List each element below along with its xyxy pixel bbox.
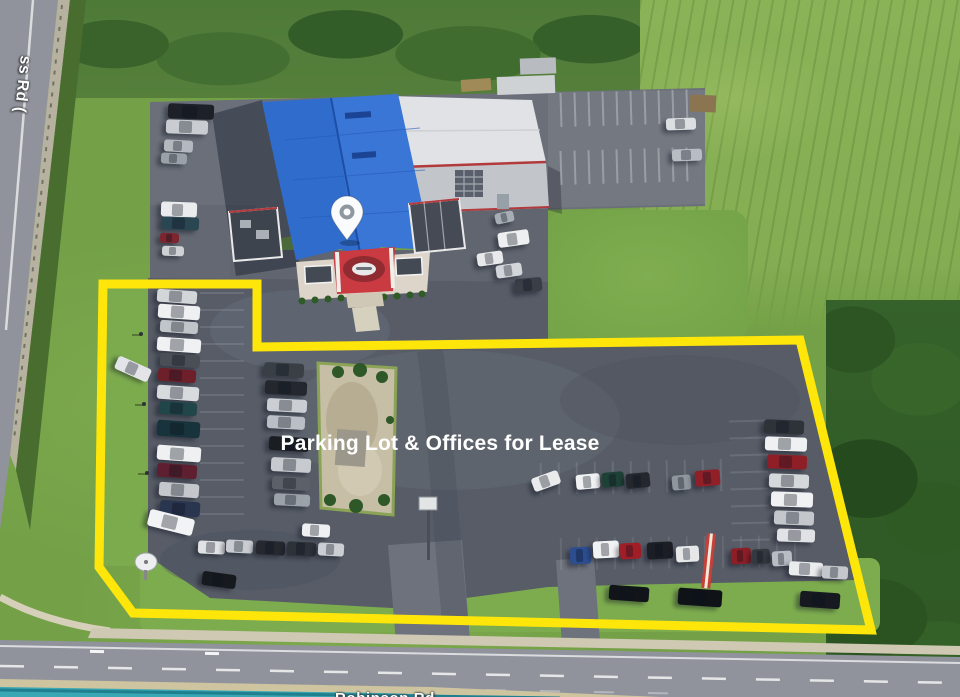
lease-banner-text: Parking Lot & Offices for Lease: [281, 432, 600, 456]
lease-outline-overlay: [0, 0, 960, 697]
aerial-photo: Parking Lot & Offices for Lease Robinson…: [0, 0, 960, 697]
lease-banner: Parking Lot & Offices for Lease: [253, 420, 627, 468]
location-pin-icon: [331, 196, 363, 240]
road-label-robinson: Robinson Rd: [335, 690, 435, 697]
